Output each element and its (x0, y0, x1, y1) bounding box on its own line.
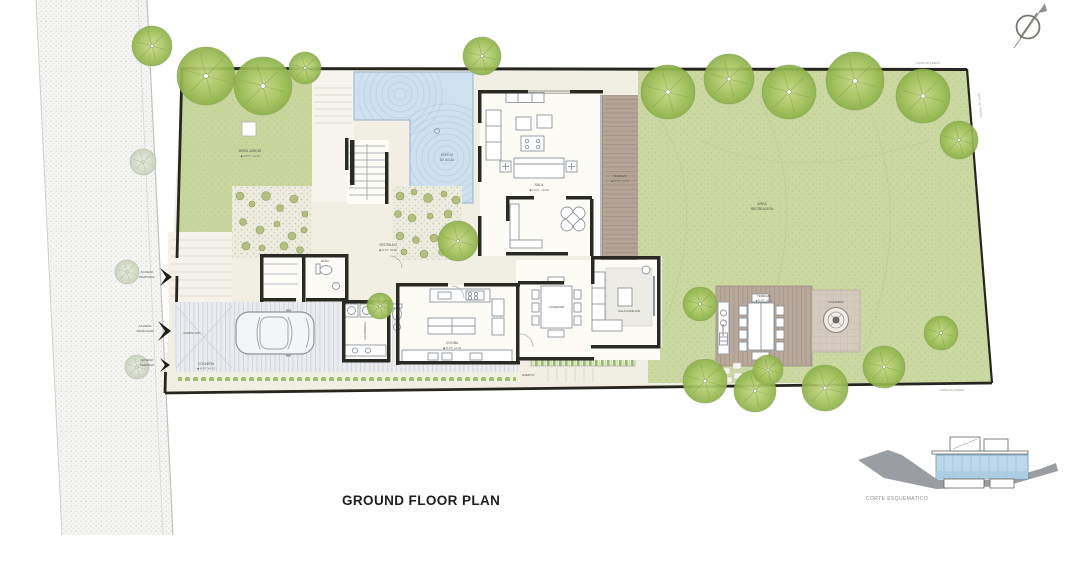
car (236, 310, 314, 357)
terraza-ext-level: ◆ N.P.T. +0.15 (756, 299, 773, 303)
cochera-label: COCHERA (198, 362, 215, 366)
section-label: CORTE ESQUEMATICO (866, 496, 928, 502)
tree-icon (641, 65, 695, 119)
lavanderia-label: LAVANDERIA (363, 322, 367, 341)
garden-level: ◆ N.P.T. +0.15 (240, 154, 260, 158)
tree-icon (132, 26, 172, 66)
tree-icon (802, 365, 848, 411)
boundary-label-top: LIMITE DE PREDIO (915, 61, 941, 65)
cocina-level: ◆ N.P.T. +0.30 (443, 346, 461, 350)
pool-label-1: ESPEJO (441, 153, 454, 157)
tree-icon (130, 149, 156, 175)
acceso-peatonal-1: ACCESO (141, 270, 154, 274)
tree-icon (896, 69, 950, 123)
tree-icon (762, 65, 816, 119)
comedor-label: COMEDOR (549, 305, 566, 309)
lawn-label-2: RECREACION (751, 207, 774, 211)
tree-icon (704, 54, 754, 104)
tree-icon (753, 355, 783, 385)
garden-label: AREA JARDIN (239, 149, 262, 153)
terraza-ext-label: TERRAZA (757, 294, 771, 298)
garden-feature (242, 122, 256, 136)
sala-label: SALA (535, 183, 544, 187)
acceso-vehicular-1: ACCESO (139, 324, 152, 328)
street (36, 0, 173, 535)
vestibulo-label: VESTIBULO (379, 243, 397, 247)
schematic-section: CORTE ESQUEMATICO (858, 437, 1058, 502)
tree-icon (463, 37, 501, 75)
fogatero-label: FOGATERO (828, 300, 844, 304)
tree-icon (367, 293, 393, 319)
lawn-label-1: AREA (757, 202, 767, 206)
tree-icon (924, 316, 958, 350)
bano-label: BAÑO (321, 258, 330, 263)
acceso-peatonal-2: PEATONAL (139, 275, 155, 279)
tree-icon (289, 52, 321, 84)
pool-label-2: DE AGUA (440, 158, 455, 162)
tree-icon (438, 221, 478, 261)
north-arrow (1014, 4, 1047, 48)
family-room-furniture (592, 266, 654, 331)
tree-icon (234, 57, 292, 115)
asador-label: ASADOR (721, 324, 725, 336)
acceso-servicio-2: SERVICIO (140, 363, 155, 367)
tree-icon (683, 287, 717, 321)
terraza-level: ◆ N.P.T. +0.15 (611, 179, 629, 183)
cochera-level: ◆ N.P.T. +0.15 (197, 367, 215, 371)
fire-pit (824, 308, 849, 333)
tree-icon (115, 260, 139, 284)
huerto-label: HUERTO (522, 373, 535, 377)
acceso-servicio-1: ACCESO (141, 358, 154, 362)
plan-title: GROUND FLOOR PLAN (342, 493, 500, 508)
tree-icon (940, 121, 978, 159)
tree-icon (177, 47, 235, 105)
cocina-label: COCINA (446, 341, 459, 345)
boundary-label-bottom: LIMITE DE PREDIO (939, 388, 965, 392)
tree-icon (826, 52, 884, 110)
terraza-label: TERRAZA (613, 174, 627, 178)
familiar-label: SALA FAMILIAR (618, 309, 641, 313)
tree-icon (863, 346, 905, 388)
sala-level: ◆ N.P.T. +0.30 (529, 188, 549, 192)
tree-icon (683, 359, 727, 403)
floor-plan-canvas: AREA JARDIN ◆ N.P.T. +0.15 ESPEJO DE AGU… (0, 0, 1074, 571)
rampa-label: RAMPA 15% (183, 331, 200, 335)
planting-bed-left (232, 186, 312, 258)
floor-plan-drawing: AREA JARDIN ◆ N.P.T. +0.15 ESPEJO DE AGU… (0, 0, 1074, 571)
boundary-label-right: LIMITE DE PREDIO (977, 92, 984, 118)
vestibulo-level: ◆ N.P.T. ±0.00 (379, 248, 397, 252)
acceso-vehicular-2: VEHICULAR (136, 329, 154, 333)
